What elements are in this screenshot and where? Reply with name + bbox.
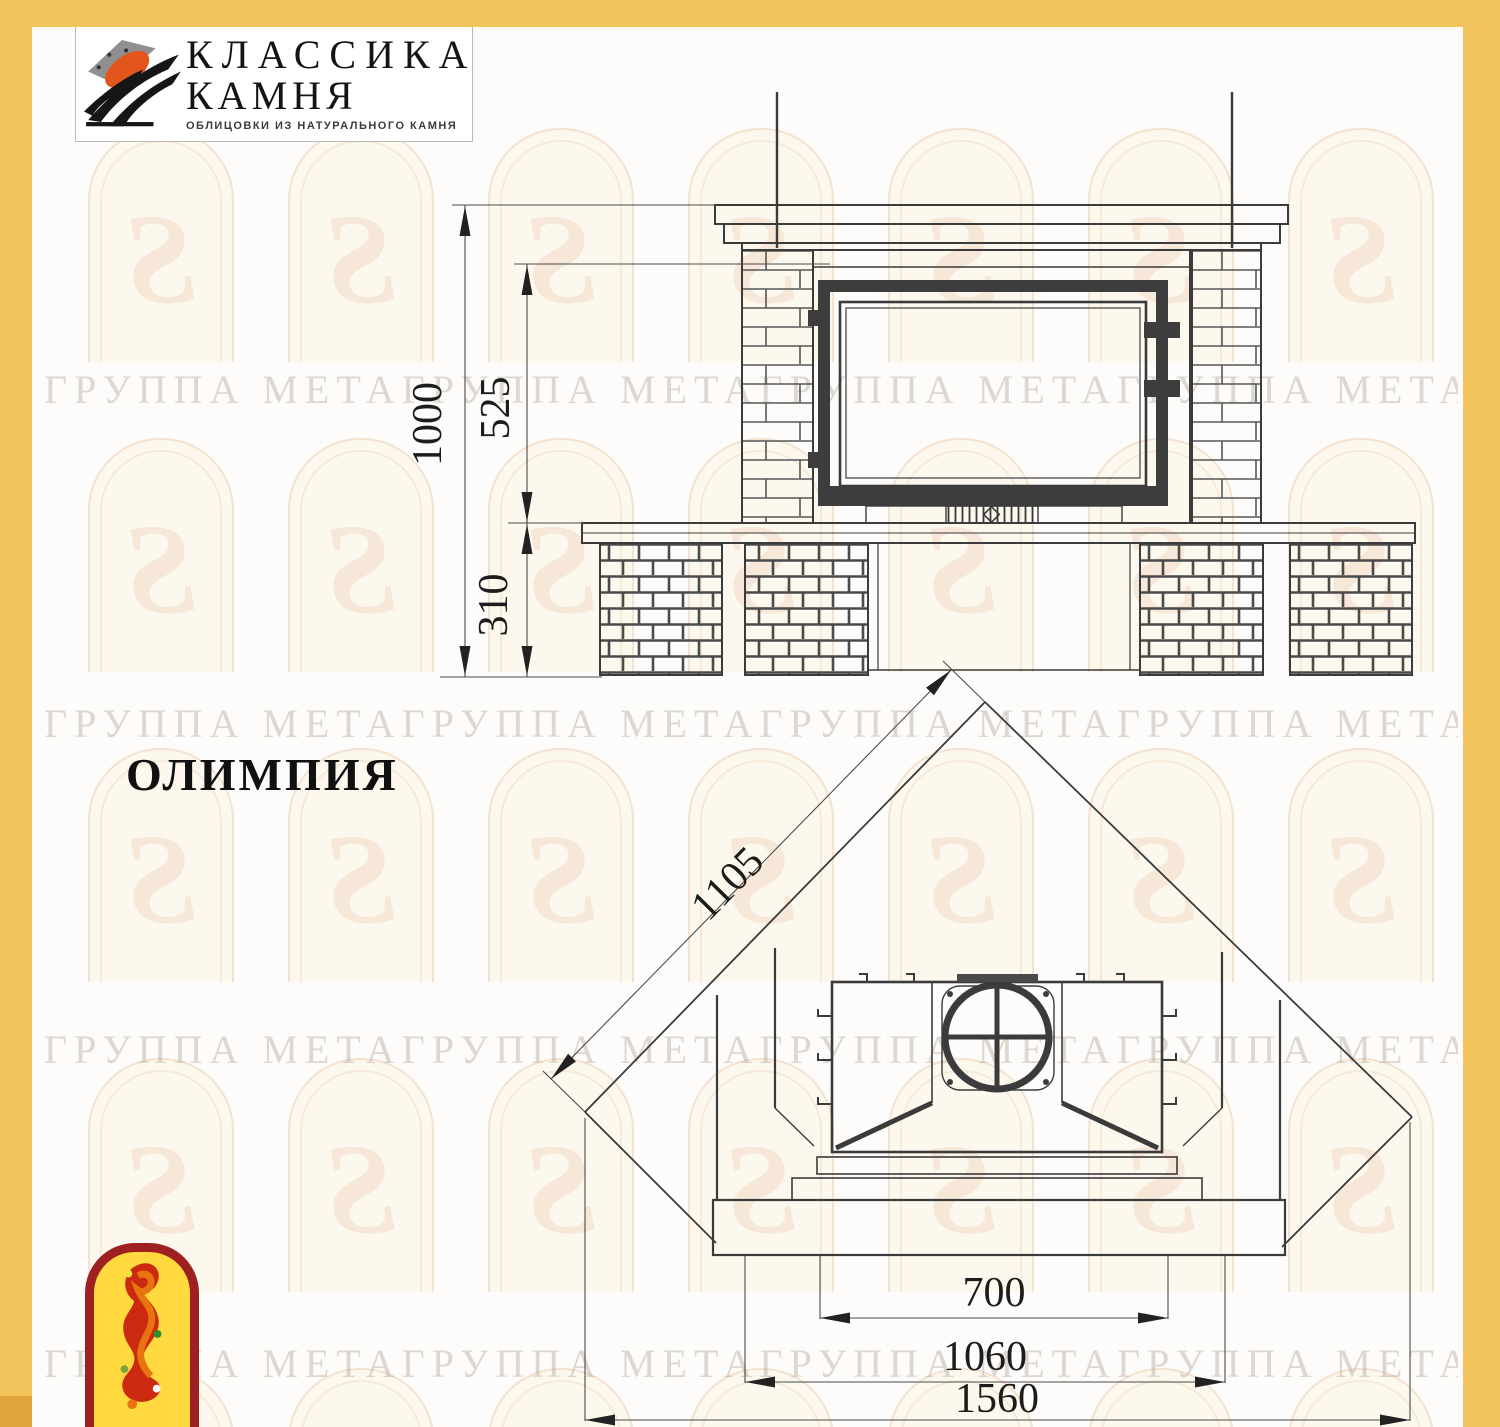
dim-label-total-height: 1000 xyxy=(405,382,451,466)
dim-label-opening-width: 700 xyxy=(963,1270,1026,1316)
model-name: ОЛИМПИЯ xyxy=(126,748,399,801)
frame-top xyxy=(0,0,1500,27)
frame-left xyxy=(0,0,32,1427)
dim-label-diagonal-width: 1105 xyxy=(682,838,773,929)
dim-label-overall-width: 1560 xyxy=(955,1376,1039,1422)
logo-caption: ОБЛИЦОВКИ ИЗ НАТУРАЛЬНОГО КАМНЯ xyxy=(186,120,477,132)
brand-logo-icon xyxy=(84,29,184,133)
dim-label-firebox-height: 525 xyxy=(473,377,519,440)
fireplace-technical-drawing: 1000 525 310 xyxy=(0,0,1500,1427)
logo-title-line1: КЛАССИКА xyxy=(186,35,477,75)
dim-label-plinth-height: 310 xyxy=(471,574,517,637)
frame-corner-dark xyxy=(0,1396,32,1427)
firebird-mascot-icon xyxy=(85,1243,199,1427)
datasheet-page: SSSSSSSSSSSSSSSSSSSSSSSSSSSSSSSSSSS ГРУП… xyxy=(0,0,1500,1427)
company-logo: КЛАССИКА КАМНЯ ОБЛИЦОВКИ ИЗ НАТУРАЛЬНОГО… xyxy=(75,22,473,142)
dim-label-hearth-width: 1060 xyxy=(943,1334,1027,1380)
plan-view xyxy=(585,702,1412,1255)
logo-title-line2: КАМНЯ xyxy=(186,75,477,117)
frame-right xyxy=(1463,0,1500,1427)
front-view xyxy=(582,92,1415,675)
